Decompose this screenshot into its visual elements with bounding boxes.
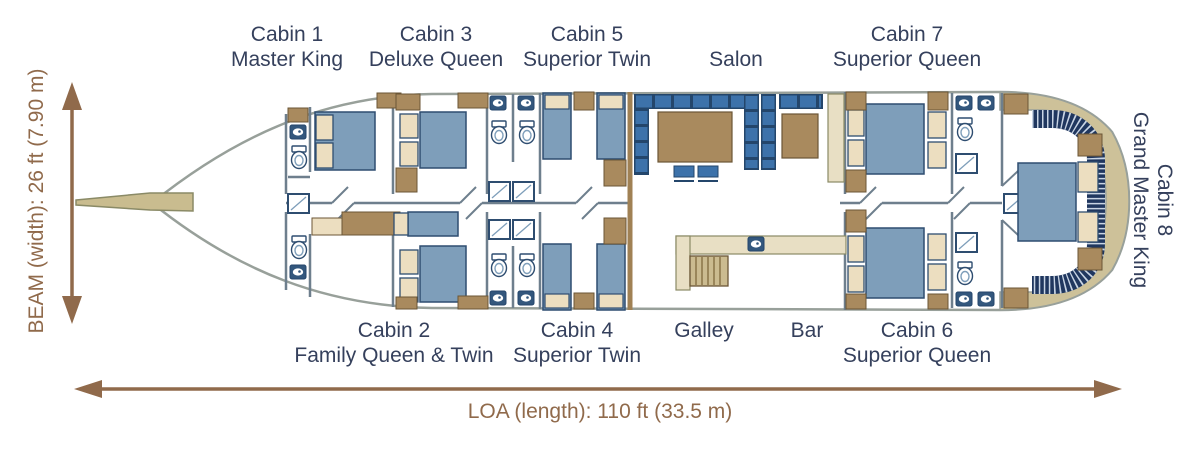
bath-shower — [513, 182, 534, 201]
cabin-5-wardrobe — [574, 92, 594, 110]
room-name: Cabin 3 — [369, 22, 503, 47]
bath-shower — [956, 154, 977, 173]
bath-toilet-icon — [958, 118, 973, 141]
room-name: Cabin 1 — [231, 22, 343, 47]
room-name: Cabin 5 — [523, 22, 651, 47]
label-galley: Galley — [674, 318, 734, 343]
cabin-7-dresser — [928, 112, 946, 138]
bath-sink-icon — [490, 291, 506, 305]
cabin-8-bed — [1018, 163, 1076, 241]
cabin-2-dresser — [400, 250, 418, 274]
cabin-2-queen-bed — [420, 246, 466, 302]
cabin-7-pillow — [848, 110, 864, 136]
cabin-1-sofa-cream — [312, 218, 342, 235]
cabin-4-wardrobe — [604, 218, 626, 244]
cabin-4-pillow — [545, 294, 569, 308]
cabin-3-dresser — [400, 142, 418, 166]
salon-table — [658, 112, 732, 162]
bath-sink-icon — [956, 96, 972, 110]
cabin-6-wardrobe — [846, 294, 866, 309]
label-cabin-1: Cabin 1 Master King — [231, 22, 343, 72]
cabin-2-twin-bed — [408, 212, 458, 236]
room-name: Cabin 6 — [843, 318, 991, 343]
bath-toilet-icon — [492, 254, 507, 277]
cabin-7-dresser — [928, 142, 946, 168]
bath-sink-icon — [518, 96, 534, 110]
bow-toilet2-icon — [292, 236, 307, 259]
cabin-7-pillow — [848, 140, 864, 166]
bath-toilet-icon — [520, 121, 535, 144]
room-name: Cabin 4 — [513, 318, 641, 343]
beam-dimension-label: BEAM (width): 26 ft (7.90 m) — [25, 69, 49, 334]
bar-sink-icon — [748, 237, 764, 251]
label-cabin-5: Cabin 5 Superior Twin — [523, 22, 651, 72]
label-bar: Bar — [791, 318, 824, 343]
room-desc: Superior Twin — [523, 47, 651, 72]
cabin-8-wardrobe — [1004, 94, 1028, 114]
room-desc: Master King — [231, 47, 343, 72]
cabin-3-dresser — [400, 114, 418, 138]
bath-toilet-icon — [958, 262, 973, 285]
bow-shower — [288, 194, 309, 213]
bowsprit — [76, 193, 193, 211]
cabin-2-wardrobe — [458, 296, 488, 309]
cabin-1-pillow — [316, 143, 333, 168]
bath-shower — [513, 220, 534, 239]
cabin-7-wardrobe — [928, 92, 948, 110]
room-desc: Family Queen & Twin — [294, 343, 493, 368]
bath-sink-icon — [490, 96, 506, 110]
label-cabin-2: Cabin 2 Family Queen & Twin — [294, 318, 493, 368]
label-cabin-3: Cabin 3 Deluxe Queen — [369, 22, 503, 72]
label-cabin-4: Cabin 4 Superior Twin — [513, 318, 641, 368]
label-salon: Salon — [709, 47, 763, 72]
room-desc: Superior Queen — [833, 47, 981, 72]
bath-shower — [489, 220, 510, 239]
bow-bath-cabinet — [288, 108, 308, 122]
bath-sink-icon — [518, 291, 534, 305]
cabin-3-wardrobe — [396, 94, 420, 110]
room-name: Bar — [791, 318, 824, 343]
bath-sink-icon — [956, 292, 972, 306]
bath-sink-icon — [978, 292, 994, 306]
cabin-7-wardrobe — [846, 92, 866, 110]
bow-sink2-icon — [290, 265, 306, 279]
loa-dimension-label: LOA (length): 110 ft (33.5 m) — [468, 400, 733, 424]
bath-shower — [489, 182, 510, 201]
bath-toilet-icon — [520, 254, 535, 277]
cabin-6-pillow — [848, 266, 864, 292]
cabin-2-wardrobe — [396, 297, 417, 309]
label-cabin-8: Cabin 8 Grand Master King — [1128, 112, 1176, 288]
cabin-8-wardrobe — [1078, 248, 1102, 270]
cabin-8-wardrobe — [1004, 288, 1028, 308]
cabin-6-pillow — [848, 236, 864, 262]
bath-toilet-icon — [492, 121, 507, 144]
salon-side-table — [782, 114, 818, 158]
room-desc: Deluxe Queen — [369, 47, 503, 72]
loa-arrow — [74, 380, 1122, 398]
cabin-6-wardrobe — [846, 210, 866, 232]
cabin-8-wardrobe — [1078, 134, 1102, 156]
room-name: Salon — [709, 47, 763, 72]
room-desc: Grand Master King — [1128, 112, 1152, 288]
cabin-3-wardrobe — [458, 93, 488, 108]
cabin-4-pillow — [599, 294, 623, 308]
cabin-4-wardrobe — [574, 293, 594, 309]
cabin-2-twin-pillow — [394, 213, 408, 235]
cabin-6-bed — [866, 228, 924, 298]
salon-stool — [698, 166, 718, 177]
room-name: Cabin 8 — [1152, 112, 1176, 288]
label-cabin-7: Cabin 7 Superior Queen — [833, 22, 981, 72]
room-desc: Superior Twin — [513, 343, 641, 368]
cabin-1-pillow — [316, 115, 333, 140]
cabin-6-dresser — [928, 264, 946, 290]
cabin-6-wardrobe — [928, 294, 948, 309]
room-desc: Superior Queen — [843, 343, 991, 368]
cabin-5-pillow — [599, 95, 623, 109]
cabin-5-wardrobe — [604, 160, 626, 186]
bow-toilet-icon — [292, 146, 307, 169]
galley-counter-leg — [676, 236, 690, 290]
yacht-deck-plan: Cabin 1 Master King Cabin 3 Deluxe Queen… — [0, 0, 1200, 453]
cabin-1-sofa-tan — [342, 212, 400, 235]
cabin-3-bed — [420, 112, 466, 168]
bath-sink-icon — [978, 96, 994, 110]
cabin-6-dresser — [928, 234, 946, 260]
salon-sideboard — [828, 94, 844, 182]
salon-stool — [674, 166, 694, 177]
label-cabin-6: Cabin 6 Superior Queen — [843, 318, 991, 368]
cabin-7-bed — [866, 104, 924, 174]
cabin-3-wardrobe — [396, 168, 417, 192]
bow-sink-icon — [290, 125, 306, 139]
cabin-7-wardrobe — [846, 170, 866, 192]
cabin-5-pillow — [545, 95, 569, 109]
room-name: Cabin 2 — [294, 318, 493, 343]
cabin-8-nightstand — [1078, 212, 1098, 242]
room-name: Cabin 7 — [833, 22, 981, 47]
cabin-8-nightstand — [1078, 162, 1098, 192]
room-name: Galley — [674, 318, 734, 343]
bath-shower — [956, 233, 977, 252]
